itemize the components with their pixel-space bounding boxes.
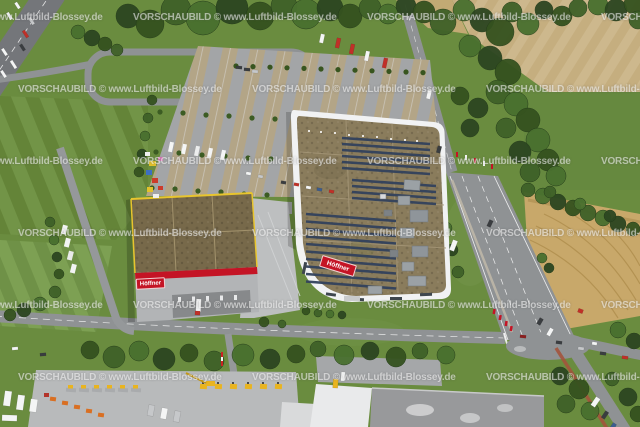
tree xyxy=(535,1,553,19)
tree xyxy=(412,343,428,359)
tree xyxy=(291,0,321,29)
tree xyxy=(574,198,586,210)
parking-tree xyxy=(176,150,181,155)
parking-tree xyxy=(203,112,208,117)
vehicle xyxy=(12,347,18,350)
tree xyxy=(314,309,322,317)
tree xyxy=(338,311,346,319)
parking-tree xyxy=(386,69,391,74)
parking-tree xyxy=(157,109,162,114)
tree xyxy=(147,95,157,105)
yellow-machine xyxy=(120,385,125,389)
tree xyxy=(551,367,569,385)
yellow-machine xyxy=(133,385,138,389)
crop-field-left xyxy=(0,96,148,240)
tree xyxy=(17,303,31,317)
parking-tree xyxy=(226,113,231,118)
parking-tree xyxy=(420,70,425,75)
vehicle xyxy=(578,347,584,351)
tree xyxy=(81,341,99,359)
tree xyxy=(153,348,175,370)
striped-pole xyxy=(221,352,223,366)
tree xyxy=(537,253,547,263)
parking-tree xyxy=(195,188,200,193)
tree xyxy=(71,25,85,39)
tree xyxy=(180,344,198,362)
tree xyxy=(140,131,150,141)
yellow-machine xyxy=(107,385,112,389)
parking-tree xyxy=(272,116,277,121)
tree xyxy=(49,235,59,245)
tree xyxy=(287,345,305,363)
vehicle xyxy=(592,342,597,346)
tree xyxy=(334,345,354,365)
tree xyxy=(52,252,62,262)
tree xyxy=(378,4,398,24)
machine-cab xyxy=(262,382,264,384)
tree xyxy=(452,266,464,278)
parking-tree xyxy=(268,156,273,161)
tree xyxy=(359,0,381,19)
tree xyxy=(546,166,566,186)
excavator xyxy=(206,381,215,386)
orange-machine xyxy=(74,405,80,410)
tree xyxy=(103,346,125,368)
tree xyxy=(98,37,112,51)
tree xyxy=(302,307,310,315)
tree xyxy=(544,263,554,273)
tree xyxy=(544,186,556,198)
hoeffner-sign-warehouse: Höffner xyxy=(136,277,166,290)
tree xyxy=(626,333,640,349)
tree xyxy=(260,349,280,369)
warehouse-building xyxy=(126,193,259,322)
vehicle xyxy=(196,299,202,312)
parking-tree xyxy=(369,68,374,73)
tree xyxy=(143,113,153,123)
vehicle xyxy=(40,353,46,356)
vehicle xyxy=(329,190,334,194)
yellow-machine xyxy=(275,384,282,389)
orange-machine xyxy=(50,397,56,402)
parking-tree xyxy=(153,149,158,154)
orange-machine xyxy=(62,401,68,406)
tree xyxy=(326,310,334,318)
vehicle xyxy=(236,66,242,69)
parking-tree xyxy=(245,155,250,160)
tree xyxy=(386,347,406,367)
tree xyxy=(134,167,144,177)
tree xyxy=(517,13,539,35)
yellow-machine xyxy=(94,385,99,389)
vehicle xyxy=(258,175,263,179)
tree xyxy=(246,2,274,30)
tree xyxy=(626,222,640,236)
tree xyxy=(496,118,516,138)
white-industrial-building xyxy=(310,384,372,427)
tree xyxy=(437,346,455,364)
vehicle xyxy=(244,68,250,71)
parking-tree xyxy=(301,66,306,71)
parking-tree xyxy=(172,186,177,191)
tree xyxy=(521,183,535,197)
parking-tree xyxy=(264,192,269,197)
tree xyxy=(310,341,326,357)
vehicle xyxy=(317,188,322,192)
hoeffner-sign-warehouse-label: Höffner xyxy=(140,280,162,287)
machine-cab xyxy=(247,382,249,384)
tree xyxy=(338,4,362,28)
vehicle xyxy=(556,341,562,345)
parking-tree xyxy=(250,64,255,69)
tree xyxy=(486,18,514,46)
yellow-machine xyxy=(260,384,267,389)
parking-tree xyxy=(180,110,185,115)
tree xyxy=(459,35,481,57)
aerial-photo-luftbild: Höffner Höffner VORSCHAUBILD © www.Luftb… xyxy=(0,0,640,427)
tree xyxy=(361,342,379,360)
tree xyxy=(136,10,164,38)
vehicle xyxy=(333,379,339,388)
tree xyxy=(111,44,123,56)
vehicle xyxy=(281,181,286,185)
red-machine xyxy=(44,393,49,397)
tree xyxy=(45,217,55,227)
tree xyxy=(451,87,469,105)
vehicle xyxy=(195,311,200,315)
parking-tree xyxy=(403,69,408,74)
orange-machine xyxy=(98,413,104,418)
vehicle xyxy=(622,356,628,360)
tree xyxy=(232,344,254,366)
tree xyxy=(461,119,479,137)
parking-tree xyxy=(335,67,340,72)
hoeffner-store-building xyxy=(286,110,451,302)
parking-tree xyxy=(267,65,272,70)
yellow-machine xyxy=(81,385,86,389)
vehicle xyxy=(341,372,346,381)
tree xyxy=(278,320,286,328)
orange-machine xyxy=(86,409,92,414)
parking-tree xyxy=(318,66,323,71)
aerial-scene xyxy=(0,0,640,427)
machine-cab xyxy=(277,382,279,384)
machine-cab xyxy=(232,382,234,384)
tree xyxy=(33,297,47,311)
parking-tree xyxy=(199,152,204,157)
tree xyxy=(604,210,616,222)
tree xyxy=(605,372,619,386)
tree xyxy=(569,379,589,399)
vehicle xyxy=(294,183,299,187)
machine-cab xyxy=(217,382,219,384)
vehicle xyxy=(246,172,251,176)
tree xyxy=(430,9,456,35)
entrance-canopy xyxy=(344,296,360,301)
tree xyxy=(557,395,575,413)
vehicle xyxy=(2,415,17,422)
parking-tree xyxy=(249,115,254,120)
vehicle xyxy=(520,335,526,339)
tree xyxy=(468,98,488,118)
tree xyxy=(129,341,149,361)
tree xyxy=(54,269,64,279)
vehicle xyxy=(306,186,311,190)
yellow-machine xyxy=(68,385,73,389)
tree xyxy=(84,30,100,46)
tree xyxy=(569,0,587,17)
tree xyxy=(49,286,61,298)
vehicle xyxy=(252,70,258,73)
tree xyxy=(619,388,637,406)
yellow-machine xyxy=(245,384,252,389)
parking-tree xyxy=(284,65,289,70)
tree xyxy=(186,1,220,35)
yellow-machine xyxy=(215,384,222,389)
tree xyxy=(4,309,16,321)
tree xyxy=(610,322,626,338)
vehicle xyxy=(600,352,606,356)
tree xyxy=(259,317,269,327)
tree xyxy=(605,0,627,21)
yellow-machine xyxy=(230,384,237,389)
parking-tree xyxy=(352,68,357,73)
tree xyxy=(520,162,540,182)
tree xyxy=(509,141,531,163)
